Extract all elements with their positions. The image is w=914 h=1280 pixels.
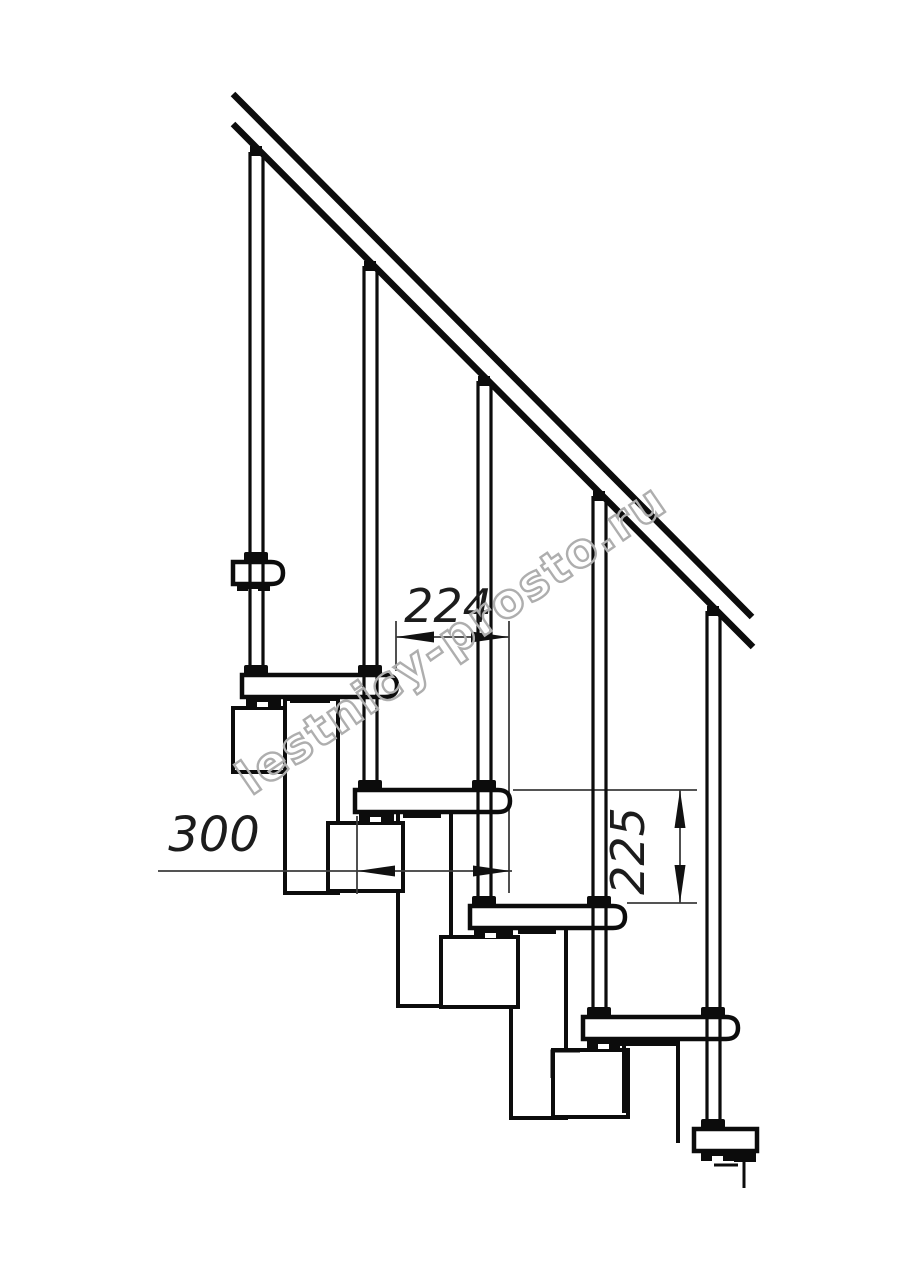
collar-b1-pass <box>244 552 268 562</box>
collar-b5-pass <box>701 1007 725 1017</box>
collar-b5-foot <box>701 1119 725 1129</box>
technical-drawing: 224 300 225 lestnicy-prosto.ru <box>0 0 914 1280</box>
collar-b1-foot <box>244 665 268 675</box>
module-sleeve-3 <box>441 937 518 1007</box>
tread-3 <box>470 906 625 928</box>
staircase-drawing-svg: 224 300 225 lestnicy-prosto.ru <box>0 0 914 1280</box>
watermark: lestnicy-prosto.ru <box>227 473 677 806</box>
dimension-label-225: 225 <box>601 807 655 895</box>
tread-4 <box>583 1017 738 1039</box>
collar-b2-foot <box>358 780 382 790</box>
handrail <box>233 94 753 647</box>
tread-0-nose <box>233 562 283 584</box>
collar-b4-pass <box>587 896 611 906</box>
dimension-label-300: 300 <box>168 807 260 863</box>
tread-5-cut <box>694 1129 757 1151</box>
module-sleeve-2 <box>328 823 403 891</box>
collar-b3-pass <box>472 780 496 790</box>
tread-2 <box>355 790 510 812</box>
arrow-225-down <box>675 865 686 903</box>
arrow-225-up <box>675 790 686 828</box>
collar-b4-foot <box>587 1007 611 1017</box>
handrail-bottom-edge <box>233 124 753 647</box>
collar-b3-foot <box>472 896 496 906</box>
module-sleeve-4 <box>553 1050 628 1117</box>
